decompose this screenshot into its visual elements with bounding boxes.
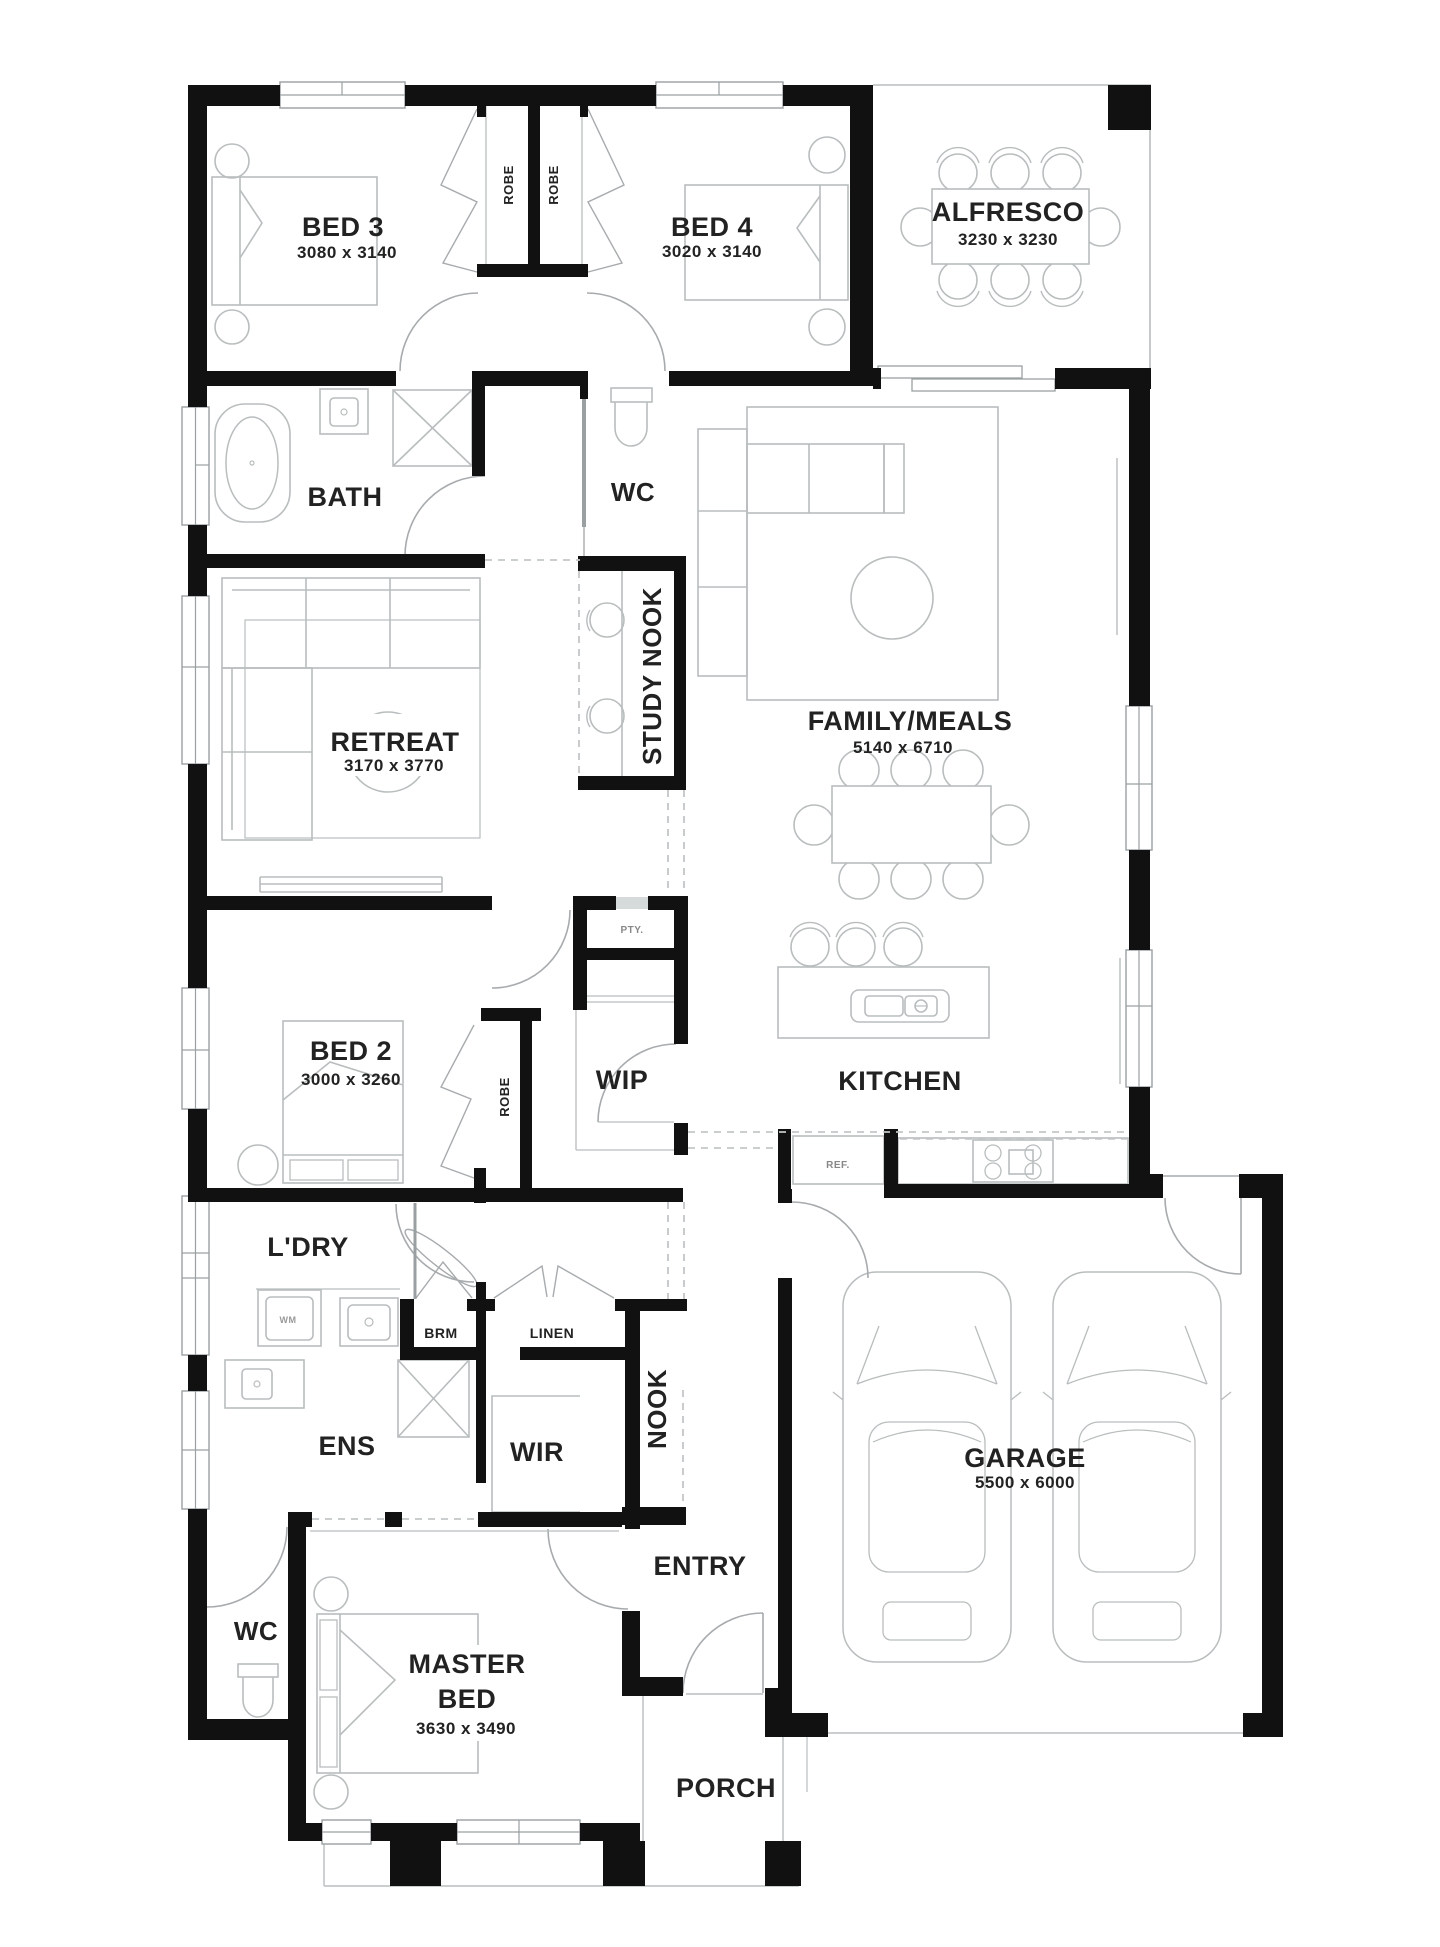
- svg-text:BED 2: BED 2: [310, 1036, 392, 1066]
- svg-text:RETREAT: RETREAT: [331, 727, 460, 757]
- svg-text:ENTRY: ENTRY: [653, 1551, 746, 1581]
- svg-text:3000 x 3260: 3000 x 3260: [301, 1070, 401, 1089]
- svg-text:WIR: WIR: [510, 1437, 564, 1467]
- svg-text:PTY.: PTY.: [620, 925, 643, 936]
- svg-text:3080 x 3140: 3080 x 3140: [297, 243, 397, 262]
- svg-text:STUDY NOOK: STUDY NOOK: [637, 587, 667, 765]
- svg-text:WIP: WIP: [596, 1065, 649, 1095]
- svg-text:5140 x 6710: 5140 x 6710: [853, 738, 953, 757]
- svg-text:BRM: BRM: [424, 1325, 457, 1341]
- svg-text:5500 x 6000: 5500 x 6000: [975, 1473, 1075, 1492]
- svg-text:3230 x 3230: 3230 x 3230: [958, 230, 1058, 249]
- svg-text:NOOK: NOOK: [642, 1369, 672, 1449]
- svg-text:ENS: ENS: [318, 1431, 375, 1461]
- svg-text:ROBE: ROBE: [546, 165, 561, 205]
- svg-text:3170 x 3770: 3170 x 3770: [344, 756, 444, 775]
- svg-text:LINEN: LINEN: [530, 1325, 575, 1341]
- svg-text:ROBE: ROBE: [501, 165, 516, 205]
- svg-text:BED: BED: [438, 1684, 497, 1714]
- svg-text:FAMILY/MEALS: FAMILY/MEALS: [808, 706, 1013, 736]
- svg-text:GARAGE: GARAGE: [964, 1443, 1086, 1473]
- svg-text:ALFRESCO: ALFRESCO: [932, 197, 1085, 227]
- svg-text:BED 4: BED 4: [671, 212, 753, 242]
- svg-text:WM: WM: [280, 1315, 297, 1325]
- svg-text:BED 3: BED 3: [302, 212, 384, 242]
- svg-text:BATH: BATH: [308, 482, 383, 512]
- svg-text:ROBE: ROBE: [497, 1077, 512, 1117]
- svg-text:WC: WC: [611, 477, 655, 507]
- svg-text:3630 x 3490: 3630 x 3490: [416, 1719, 516, 1738]
- svg-text:3020 x 3140: 3020 x 3140: [662, 242, 762, 261]
- svg-text:WC: WC: [234, 1616, 278, 1646]
- svg-text:MASTER: MASTER: [409, 1649, 526, 1679]
- svg-text:PORCH: PORCH: [676, 1773, 776, 1803]
- svg-text:KITCHEN: KITCHEN: [838, 1066, 962, 1096]
- svg-text:L'DRY: L'DRY: [267, 1232, 348, 1262]
- svg-text:REF.: REF.: [826, 1160, 850, 1171]
